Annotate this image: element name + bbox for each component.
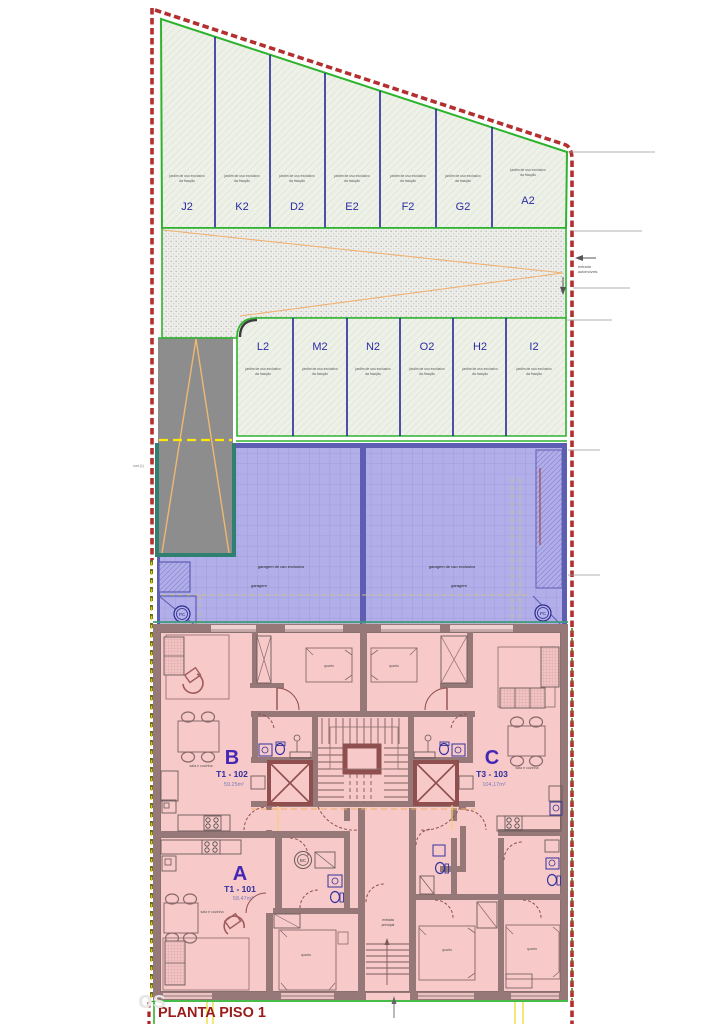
svg-text:BC: BC <box>300 858 307 863</box>
svg-text:M2: M2 <box>312 341 327 353</box>
svg-text:jardim de uso exclusivo: jardim de uso exclusivo <box>244 367 280 371</box>
svg-text:59.25m²: 59.25m² <box>224 782 244 788</box>
svg-text:da fracção: da fracção <box>312 372 328 376</box>
svg-text:quarto: quarto <box>527 947 537 951</box>
svg-text:E2: E2 <box>345 201 358 213</box>
svg-text:da fracção: da fracção <box>526 372 542 376</box>
svg-text:jardim de uso exclusivo: jardim de uso exclusivo <box>461 367 497 371</box>
svg-text:PC: PC <box>179 612 186 617</box>
svg-text:jardim de uso exclusivo: jardim de uso exclusivo <box>509 168 545 172</box>
svg-text:O2: O2 <box>420 341 435 353</box>
svg-text:quarto: quarto <box>324 664 334 668</box>
svg-text:I2: I2 <box>529 341 538 353</box>
svg-text:principal: principal <box>382 923 395 927</box>
svg-text:jardim de uso exclusivo: jardim de uso exclusivo <box>168 174 204 178</box>
svg-text:104,17m²: 104,17m² <box>482 782 505 788</box>
svg-text:F2: F2 <box>402 201 415 213</box>
svg-text:A: A <box>233 863 247 885</box>
svg-text:da fracção: da fracção <box>419 372 435 376</box>
svg-text:da fracção: da fracção <box>255 372 271 376</box>
svg-text:da fracção: da fracção <box>400 179 416 183</box>
svg-text:T1 - 101: T1 - 101 <box>224 884 256 894</box>
svg-text:os: os <box>138 987 166 1014</box>
svg-text:da fracção: da fracção <box>289 179 305 183</box>
svg-text:entrada: entrada <box>382 918 394 922</box>
svg-text:quarto: quarto <box>301 953 311 957</box>
svg-text:jardim de uso exclusivo: jardim de uso exclusivo <box>389 174 425 178</box>
svg-text:garagem de uso exclusivo: garagem de uso exclusivo <box>258 564 305 569</box>
svg-text:T1 - 102: T1 - 102 <box>216 769 248 779</box>
svg-text:cont.(1): cont.(1) <box>133 464 144 468</box>
svg-text:sala e cozinha: sala e cozinha <box>201 910 224 914</box>
svg-text:PLANTA PISO 1: PLANTA PISO 1 <box>158 1005 266 1021</box>
svg-text:58.47m²: 58.47m² <box>233 896 253 902</box>
svg-text:B: B <box>225 747 239 769</box>
svg-text:jardim de uso exclusivo: jardim de uso exclusivo <box>333 174 369 178</box>
svg-text:jardim de uso exclusivo: jardim de uso exclusivo <box>278 174 314 178</box>
svg-text:quarto: quarto <box>442 948 452 952</box>
svg-text:D2: D2 <box>290 201 304 213</box>
svg-text:J2: J2 <box>181 201 193 213</box>
svg-text:jardim de uso exclusivo: jardim de uso exclusivo <box>223 174 259 178</box>
svg-text:H2: H2 <box>473 341 487 353</box>
svg-text:automóveis: automóveis <box>578 270 598 274</box>
svg-text:entrada: entrada <box>578 265 592 269</box>
svg-text:C: C <box>485 747 499 769</box>
svg-text:da fracção: da fracção <box>179 179 195 183</box>
svg-text:sala e cozinha: sala e cozinha <box>190 764 213 768</box>
svg-text:garagem: garagem <box>451 583 467 588</box>
svg-text:K2: K2 <box>235 201 248 213</box>
svg-text:jardim de uso exclusivo: jardim de uso exclusivo <box>408 367 444 371</box>
svg-text:PC: PC <box>540 611 547 616</box>
svg-text:da fracção: da fracção <box>520 173 536 177</box>
svg-text:N2: N2 <box>366 341 380 353</box>
svg-text:da fracção: da fracção <box>234 179 250 183</box>
svg-text:da fracção: da fracção <box>472 372 488 376</box>
svg-text:jardim de uso exclusivo: jardim de uso exclusivo <box>301 367 337 371</box>
svg-text:da fracção: da fracção <box>344 179 360 183</box>
svg-text:L2: L2 <box>257 341 269 353</box>
svg-text:garagem: garagem <box>251 583 267 588</box>
svg-text:jardim de uso exclusivo: jardim de uso exclusivo <box>354 367 390 371</box>
svg-text:da fracção: da fracção <box>455 179 471 183</box>
svg-text:T3 - 103: T3 - 103 <box>476 769 508 779</box>
svg-text:sala e cozinha: sala e cozinha <box>516 766 539 770</box>
svg-text:jardim de uso exclusivo: jardim de uso exclusivo <box>444 174 480 178</box>
svg-text:A2: A2 <box>521 195 534 207</box>
svg-text:da fracção: da fracção <box>365 372 381 376</box>
svg-text:quarto: quarto <box>389 664 399 668</box>
svg-text:jardim de uso exclusivo: jardim de uso exclusivo <box>515 367 551 371</box>
svg-text:G2: G2 <box>456 201 471 213</box>
svg-text:garagem de uso exclusivo: garagem de uso exclusivo <box>429 564 476 569</box>
